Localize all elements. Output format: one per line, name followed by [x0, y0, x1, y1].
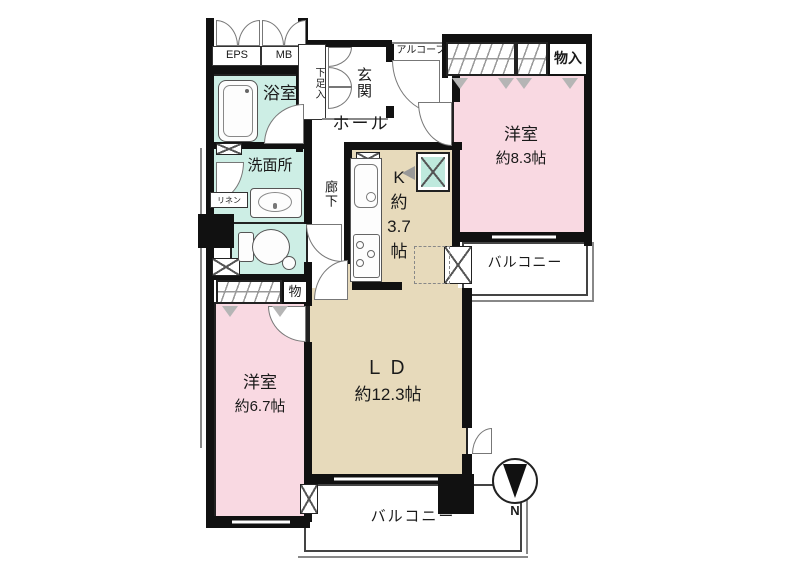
- eps-label: EPS: [214, 49, 260, 62]
- kitchen-label: K 約 3.7 帖: [382, 166, 416, 265]
- living-name: ＬＤ: [318, 356, 458, 383]
- b2-swing-mark-1: [222, 306, 238, 317]
- kitchen-label-line2: 約: [382, 191, 416, 216]
- kitchen-label-line1: K: [382, 166, 416, 191]
- bedroom1-label: 洋室 約8.3帖: [462, 122, 580, 170]
- corridor-label: 廊下: [316, 168, 338, 220]
- balcony-right-label: バルコニー: [464, 254, 586, 271]
- b2-swing-mark-2: [272, 306, 288, 317]
- wall-left-exterior-line: [200, 148, 202, 448]
- closet-b1-mid: [516, 42, 548, 76]
- balcony-right-outer-line: [462, 300, 594, 302]
- bathtub-drain-dot: [245, 89, 249, 93]
- pillar-xbox-bathwall: [216, 143, 242, 155]
- pillar-xbox-left: [212, 258, 240, 276]
- bedroom1-name: 洋室: [462, 122, 580, 148]
- shoe-storage-label: 下足入: [302, 48, 324, 118]
- storage-small-label: 物: [283, 284, 307, 300]
- kitchen-label-line4: 帖: [382, 240, 416, 265]
- wall-k-b1-b: [452, 146, 460, 246]
- floor-plan: N EPS MB 浴室 洗面所 リネン 下足入 玄関 アルコーブ ホール 廊下 …: [0, 0, 800, 577]
- eps-door-arc-2: [238, 20, 260, 46]
- wall-ld-right-a: [462, 288, 472, 428]
- kitchen-sink: [354, 164, 378, 208]
- closet-swing-mark-4: [562, 78, 578, 89]
- closet-swing-mark-1: [452, 78, 468, 89]
- washstand-dot: [273, 203, 277, 209]
- pipe-space-box: [416, 152, 450, 192]
- closet-swing-mark-2: [498, 78, 514, 89]
- closet-b1-left: [446, 42, 516, 76]
- stove-burner-3: [356, 259, 364, 267]
- bedroom1-door-arc: [418, 102, 452, 146]
- bath-label: 浴室: [256, 84, 304, 104]
- compass-needle-icon: [503, 464, 527, 498]
- alcove-label: アルコーブ: [390, 45, 452, 57]
- bedroom1-size: 約8.3帖: [462, 148, 580, 171]
- bedroom2-label: 洋室 約6.7帖: [214, 370, 306, 418]
- ld-side-door-arc: [472, 428, 492, 454]
- balcony-right-outer-line2: [592, 242, 594, 302]
- wall-alcove-top: [392, 42, 446, 44]
- window-ld-bottom: [334, 477, 438, 481]
- stove-burner-2: [367, 250, 375, 258]
- bedroom2-size: 約6.7帖: [214, 396, 306, 419]
- bedroom2-name: 洋室: [214, 370, 306, 396]
- balcony-bottom-outer-line: [298, 556, 528, 558]
- entrance-label: 玄関: [348, 54, 372, 112]
- linen-label: リネン: [210, 196, 248, 206]
- closet-swing-mark-3: [516, 78, 532, 89]
- eps-door-arc-1: [216, 20, 238, 46]
- living-label: ＬＤ 約12.3帖: [318, 356, 458, 406]
- kitchen-label-line3: 3.7: [382, 215, 416, 240]
- fridge-space: [414, 246, 450, 284]
- pipe-space-hatch: [421, 157, 445, 187]
- washroom-label: 洗面所: [234, 157, 306, 175]
- window-b1-bottom: [492, 235, 556, 239]
- bathtub-inner: [223, 85, 253, 137]
- toilet-door-arc: [306, 224, 342, 262]
- storage-closet-label: 物入: [549, 50, 587, 67]
- wall-kitchen-bottom-left: [352, 282, 402, 290]
- wall-pillar-left: [198, 214, 234, 248]
- eps-door-arc-4: [284, 20, 306, 46]
- hall-label: ホール: [322, 114, 400, 134]
- washstand-bowl: [258, 192, 292, 212]
- stove-burner-1: [356, 241, 364, 249]
- mb-label: MB: [262, 49, 306, 62]
- closet-bedroom2: [216, 280, 282, 304]
- living-door-arc: [314, 260, 348, 300]
- kitchen-faucet-circle: [366, 192, 376, 202]
- toilet-paper-circle: [282, 256, 296, 270]
- eps-door-arc-3: [262, 20, 284, 46]
- balcony-bottom-label: バルコニー: [306, 508, 520, 526]
- living-size: 約12.3帖: [318, 383, 458, 407]
- wall-closet-top: [442, 34, 592, 42]
- window-b2-bottom: [232, 520, 290, 524]
